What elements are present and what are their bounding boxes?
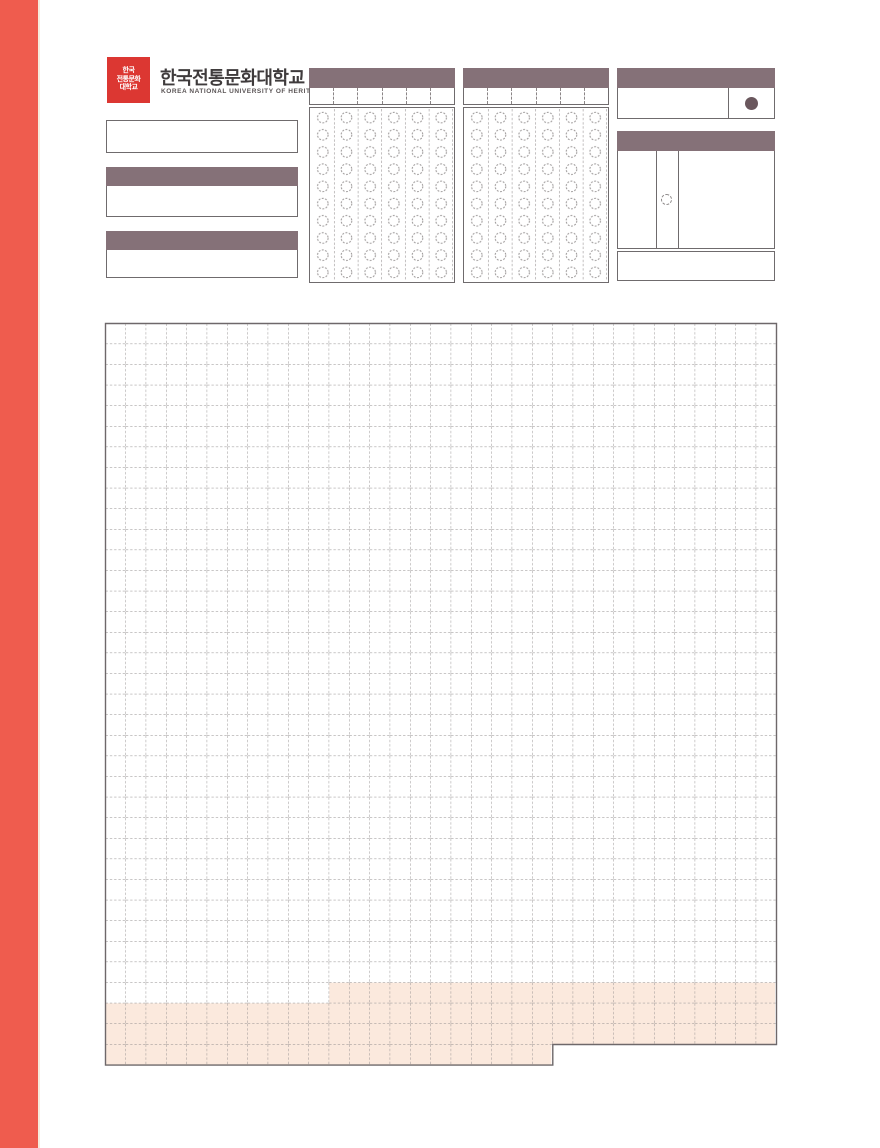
entry-panel-2-header-bar	[106, 231, 298, 250]
digit-cell[interactable]	[430, 88, 454, 104]
entry-panel-1	[106, 167, 298, 217]
omr-block-1-header-bar	[309, 68, 455, 88]
bubble-grid-pattern	[465, 109, 607, 281]
logo-line-1: 한국	[123, 67, 135, 75]
filled-dot-icon	[745, 97, 758, 110]
digit-cell[interactable]	[584, 88, 608, 104]
digit-cell[interactable]	[511, 88, 535, 104]
marker-box-header-bar	[617, 68, 775, 88]
entry-panel-1-header-bar	[106, 167, 298, 186]
marker-example-box	[617, 68, 775, 119]
digit-cell[interactable]	[406, 88, 430, 104]
omr-block-2	[463, 68, 609, 283]
university-logo: 한국 전통문화 대학교	[107, 57, 150, 103]
omr-block-1	[309, 68, 455, 283]
entry-panel-2	[106, 231, 298, 278]
confirmation-bubble[interactable]	[661, 194, 672, 205]
omr-block-1-digit-row[interactable]	[309, 88, 455, 105]
omr-block-2-header-bar	[463, 68, 609, 88]
marker-label-cell	[618, 88, 728, 118]
answer-grid-pattern	[104, 322, 778, 1067]
confirmation-box	[617, 131, 775, 249]
omr-block-2-digit-row[interactable]	[463, 88, 609, 105]
entry-panel-2-field[interactable]	[106, 250, 298, 278]
name-entry-box[interactable]	[106, 120, 298, 153]
logo-line-2: 전통문화	[117, 76, 141, 84]
digit-cell[interactable]	[382, 88, 406, 104]
digit-cell[interactable]	[487, 88, 511, 104]
column-divider	[656, 151, 657, 248]
digit-cell[interactable]	[357, 88, 381, 104]
confirmation-box-header-bar	[617, 131, 775, 151]
column-divider	[678, 151, 679, 248]
digit-cell[interactable]	[333, 88, 357, 104]
digit-cell[interactable]	[310, 88, 333, 104]
digit-cell[interactable]	[560, 88, 584, 104]
omr-block-2-bubble-grid[interactable]	[463, 107, 609, 283]
omr-block-1-bubble-grid[interactable]	[309, 107, 455, 283]
entry-panel-1-field[interactable]	[106, 186, 298, 217]
grid-cells	[106, 324, 777, 1066]
note-strip-box	[617, 251, 775, 281]
logo-line-3: 대학교	[120, 84, 138, 92]
marker-example-cell	[728, 88, 774, 118]
answer-grid[interactable]	[104, 322, 778, 1072]
binding-edge-stripe	[0, 0, 40, 1148]
digit-cell[interactable]	[464, 88, 487, 104]
digit-cell[interactable]	[536, 88, 560, 104]
bubble-grid-pattern	[311, 109, 453, 281]
answer-sheet-page: 한국 전통문화 대학교 한국전통문화대학교 KOREA NATIONAL UNI…	[0, 0, 880, 1148]
